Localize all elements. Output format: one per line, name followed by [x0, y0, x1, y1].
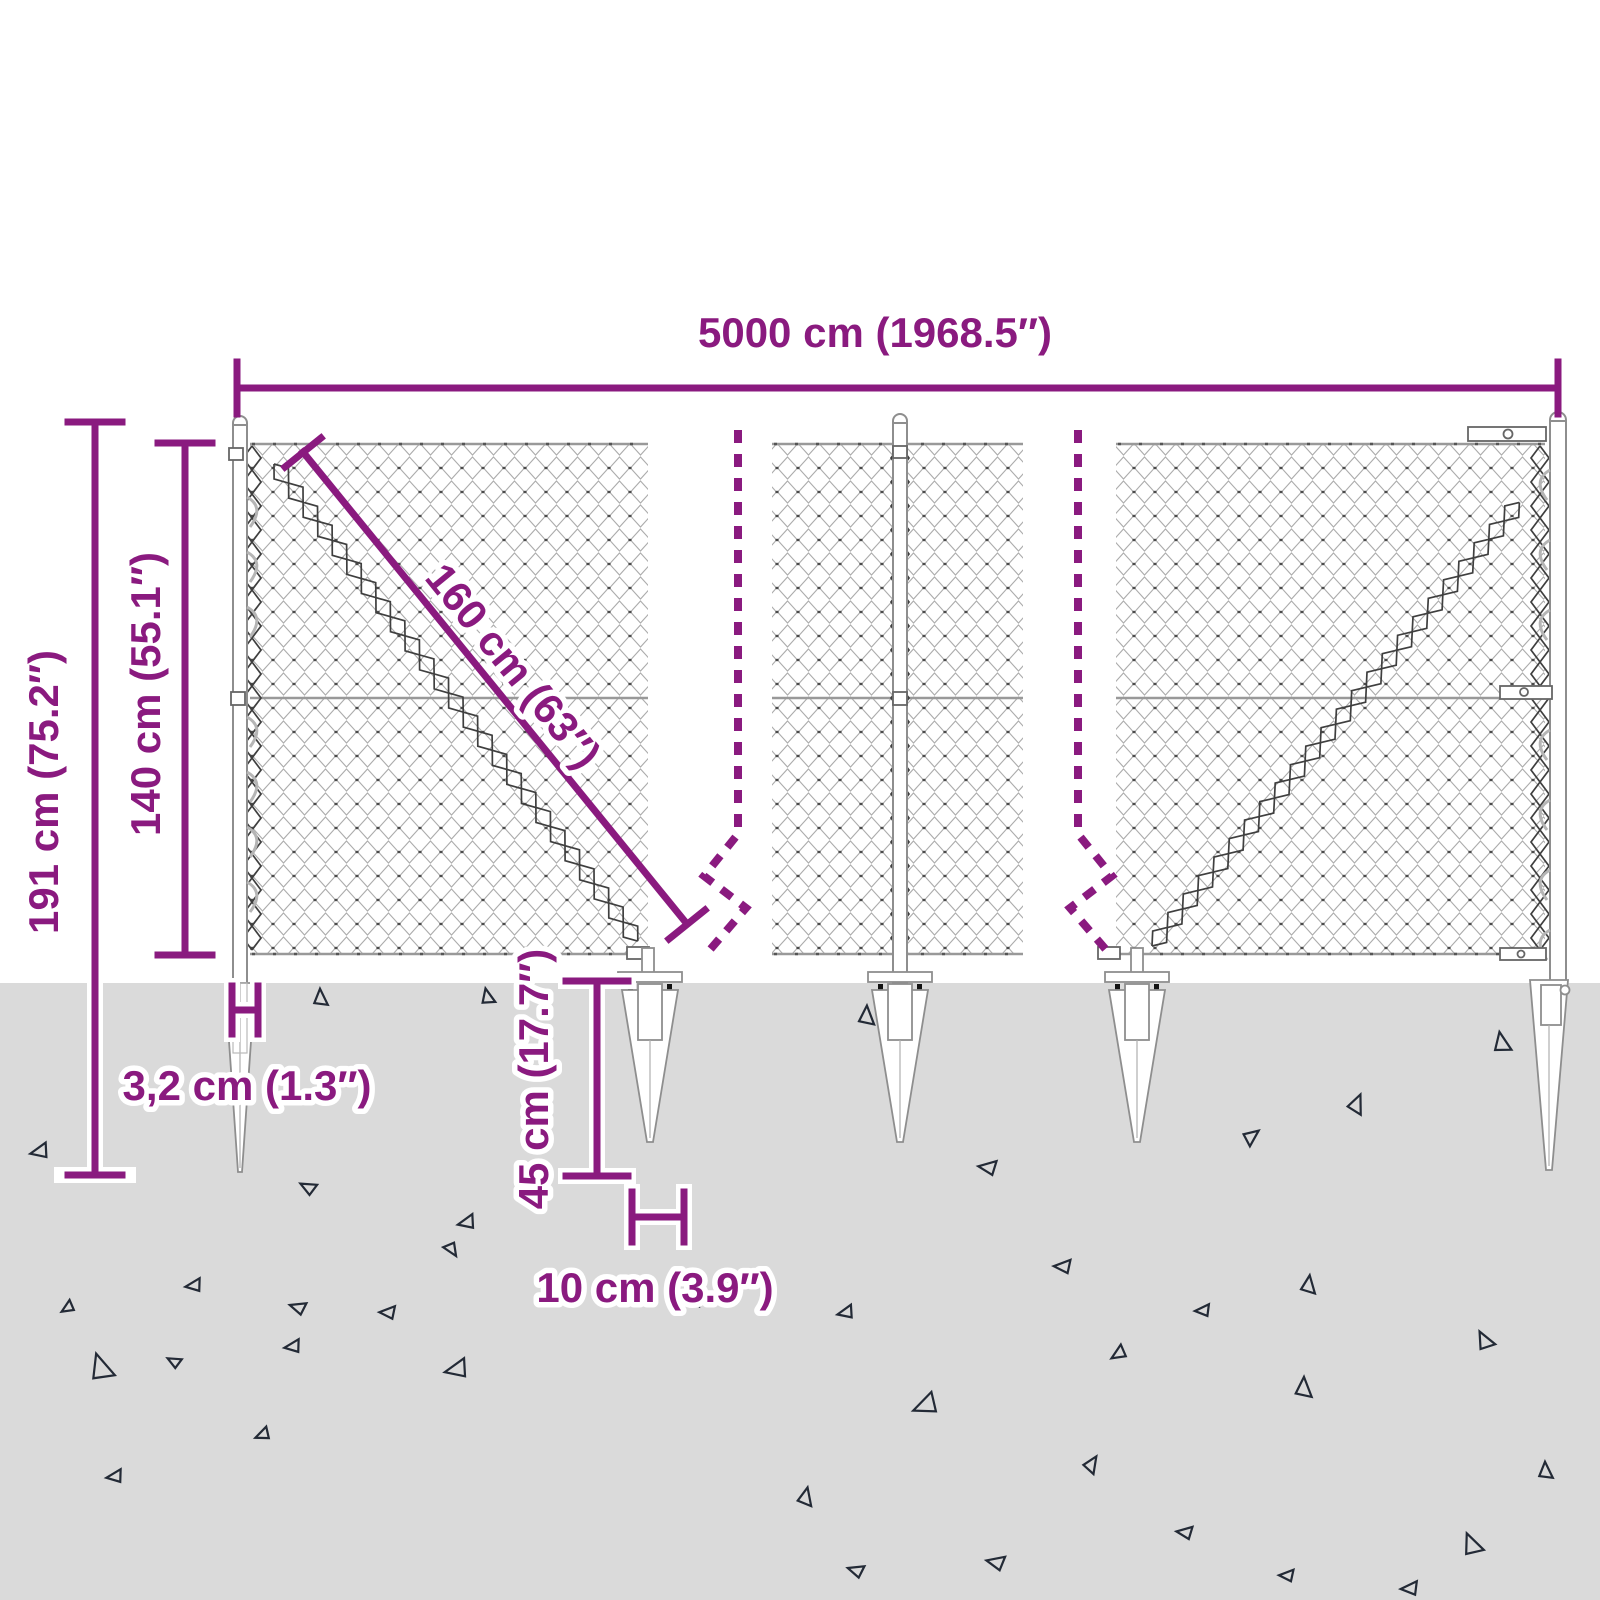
label-anchor-depth: 45 cm (17.7″): [510, 949, 557, 1210]
break-mark-right: [1070, 430, 1112, 952]
label-total-width: 5000 cm (1968.5″): [698, 309, 1052, 356]
label-overall-height: 191 cm (75.2″): [20, 650, 67, 934]
break-mark-left: [704, 430, 746, 952]
fence-dimension-diagram: 5000 cm (1968.5″) 191 cm (75.2″) 140 cm …: [0, 0, 1600, 1600]
post-right: [1550, 421, 1566, 983]
dim-total-width: [237, 362, 1558, 414]
label-post-width: 3,2 cm (1.3″): [123, 1062, 372, 1109]
label-fence-height: 140 cm (55.1″): [122, 552, 169, 836]
diagram-canvas: 5000 cm (1968.5″) 191 cm (75.2″) 140 cm …: [0, 0, 1600, 1600]
label-anchor-width: 10 cm (3.9″): [536, 1264, 773, 1311]
